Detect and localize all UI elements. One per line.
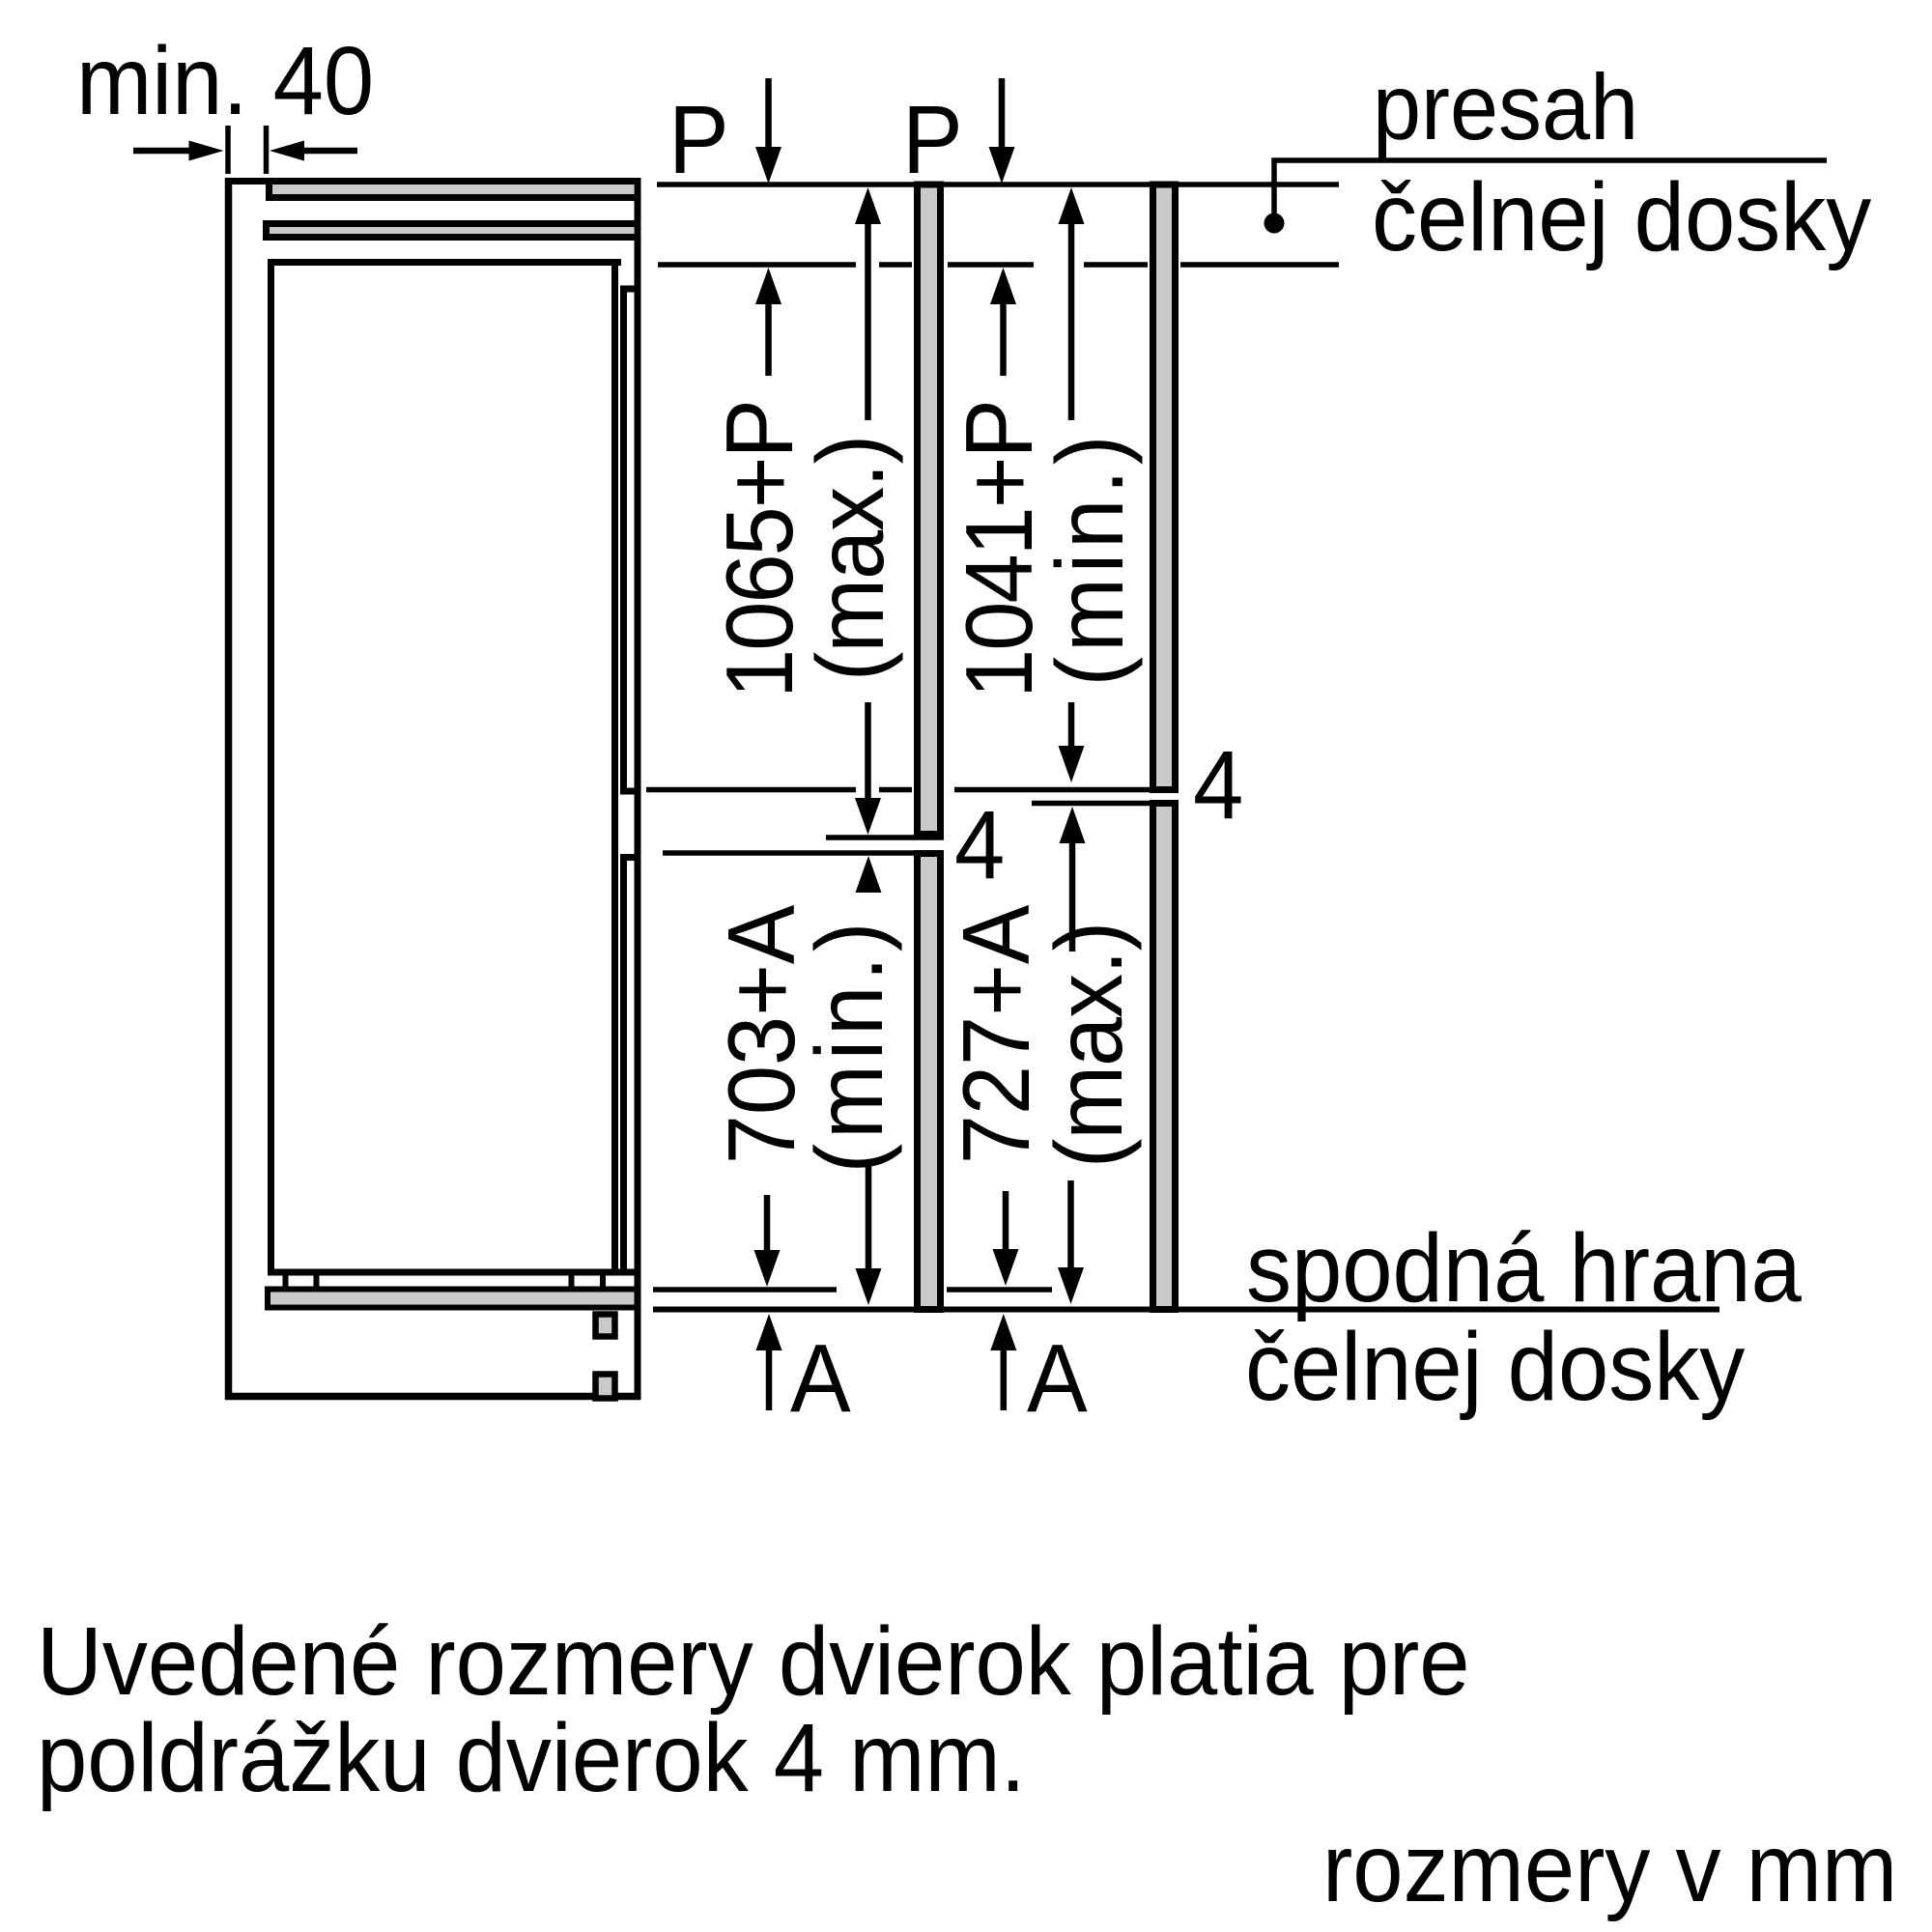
svg-text:(min.): (min.) [797,917,903,1173]
svg-text:(min.): (min.) [1037,430,1144,686]
svg-text:A: A [790,1323,851,1433]
svg-text:Uvedené rozmery dvierok platia: Uvedené rozmery dvierok platia pre [37,1606,1470,1716]
svg-text:rozmery v mm: rozmery v mm [1322,1813,1897,1922]
svg-text:presah: presah [1373,55,1638,158]
svg-text:min. 40: min. 40 [76,26,374,135]
svg-text:(max.): (max.) [1037,923,1143,1169]
svg-text:A: A [1027,1323,1088,1433]
svg-text:čelnej dosky: čelnej dosky [1372,162,1872,271]
svg-text:4: 4 [1193,730,1243,839]
svg-text:poldrážku dvierok 4 mm.: poldrážku dvierok 4 mm. [37,1703,1026,1812]
svg-text:4: 4 [954,790,1005,899]
svg-text:P: P [668,85,729,194]
svg-text:spodná hrana: spodná hrana [1246,1213,1803,1322]
svg-text:(max.): (max.) [798,436,904,682]
svg-text:727+A: 727+A [944,904,1050,1164]
svg-text:P: P [902,85,963,194]
svg-text:čelnej dosky: čelnej dosky [1245,1312,1746,1421]
